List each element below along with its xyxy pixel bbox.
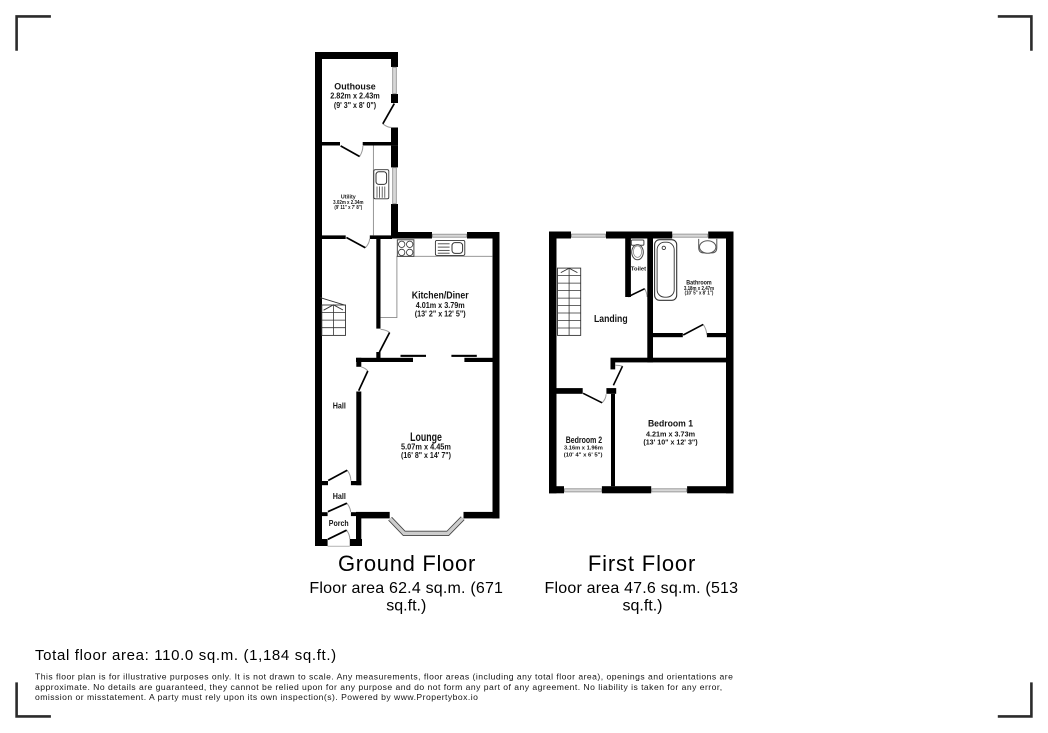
svg-text:(13' 10" x 12' 3"): (13' 10" x 12' 3"): [643, 438, 698, 447]
svg-text:(10' 5" x 8' 1"): (10' 5" x 8' 1"): [685, 291, 714, 297]
svg-text:sq.ft.): sq.ft.): [386, 598, 426, 615]
svg-text:(10' 4" x 6' 5"): (10' 4" x 6' 5"): [564, 453, 603, 459]
svg-text:Outhouse: Outhouse: [334, 81, 375, 92]
svg-text:3.16m x 1.96m: 3.16m x 1.96m: [564, 446, 603, 452]
svg-text:Total floor area: 110.0 sq.m.: Total floor area: 110.0 sq.m. (1,184 sq.…: [35, 647, 337, 664]
svg-text:(9' 3" x 8' 0"): (9' 3" x 8' 0"): [334, 101, 377, 110]
svg-text:Toilet: Toilet: [631, 266, 646, 272]
svg-text:Ground Floor: Ground Floor: [338, 551, 476, 576]
svg-text:omission or misstatement. A pa: omission or misstatement. A party must r…: [35, 692, 478, 702]
svg-text:2.82m x 2.43m: 2.82m x 2.43m: [330, 92, 380, 101]
svg-text:Bedroom 1: Bedroom 1: [648, 417, 693, 428]
svg-text:Hall: Hall: [333, 492, 346, 501]
svg-text:Hall: Hall: [333, 402, 346, 411]
svg-text:(9' 11" x 7' 8"): (9' 11" x 7' 8"): [334, 205, 362, 211]
svg-text:Bedroom 2: Bedroom 2: [566, 435, 602, 445]
svg-text:Floor area 47.6 sq.m. (513: Floor area 47.6 sq.m. (513: [545, 580, 739, 597]
svg-text:approximate. No details are gu: approximate. No details are guaranteed, …: [35, 682, 723, 692]
svg-text:First Floor: First Floor: [588, 551, 696, 576]
svg-text:Kitchen/Diner: Kitchen/Diner: [412, 291, 469, 302]
svg-text:sq.ft.): sq.ft.): [622, 598, 662, 615]
svg-text:This floor plan is for illustr: This floor plan is for illustrative purp…: [35, 672, 733, 682]
svg-text:Landing: Landing: [594, 314, 628, 325]
svg-text:(16' 8" x 14' 7"): (16' 8" x 14' 7"): [401, 450, 451, 460]
svg-text:Floor area 62.4 sq.m. (671: Floor area 62.4 sq.m. (671: [309, 580, 503, 597]
svg-text:Porch: Porch: [329, 519, 349, 528]
svg-text:(13' 2" x 12' 5"): (13' 2" x 12' 5"): [415, 310, 466, 319]
